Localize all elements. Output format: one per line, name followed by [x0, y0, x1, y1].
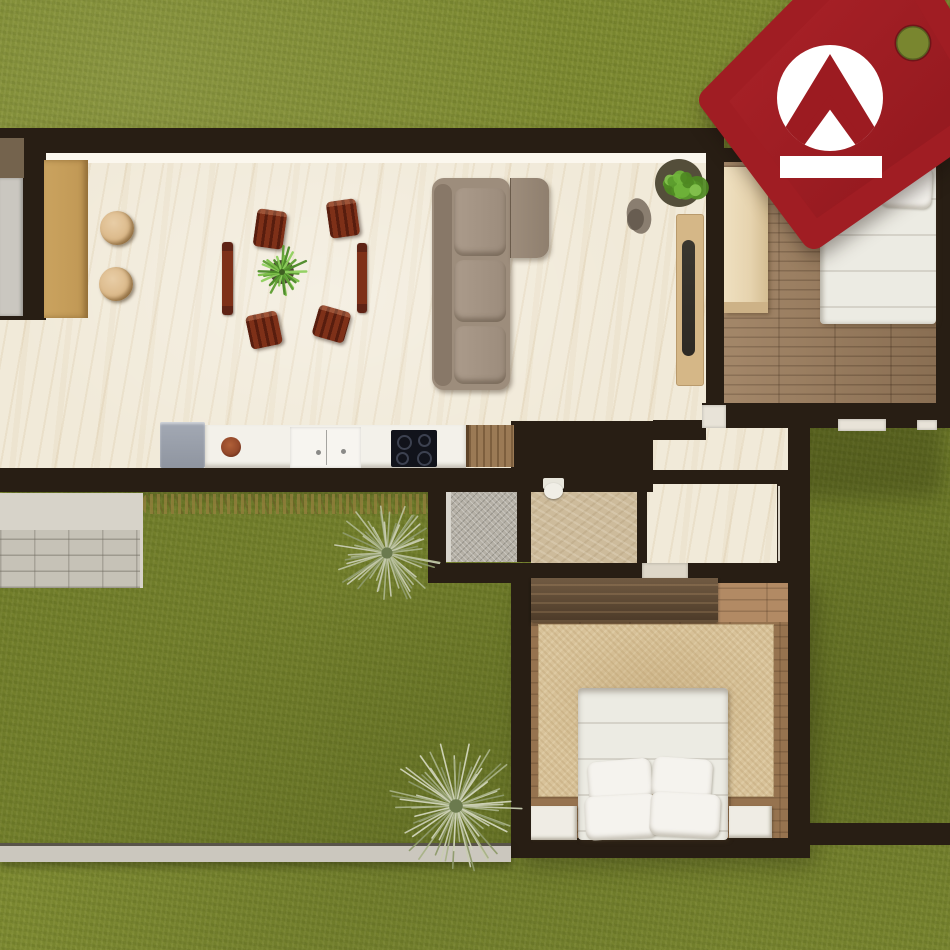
cabinet-knob	[341, 449, 346, 454]
sofa-cushion	[454, 188, 506, 256]
kitchen-door	[466, 425, 514, 467]
sink-cabinet	[290, 427, 361, 468]
paver-area	[0, 530, 140, 588]
sofa-chaise	[510, 178, 549, 258]
porch-slab	[0, 178, 23, 316]
wall-hallway-west	[637, 478, 647, 563]
toilet	[544, 483, 563, 499]
nightstand	[729, 806, 772, 838]
bar-stool	[100, 211, 134, 245]
sill-bedroom-top-2	[917, 420, 937, 430]
garden-low-wall	[0, 843, 511, 862]
sofa-backrest	[434, 184, 452, 386]
wall-utility-block	[511, 421, 653, 492]
wall-bedroom-bottom-east	[788, 563, 810, 858]
hallway-door	[777, 484, 790, 563]
courtyard-right-grass	[808, 428, 950, 823]
pillow	[649, 791, 721, 839]
dining-bench	[222, 242, 233, 315]
wall-courtyard-right-south	[798, 823, 950, 845]
wall-hallway-east	[788, 421, 810, 583]
wall-bedroom-top-east	[936, 148, 950, 428]
wall-north	[0, 128, 716, 153]
burner	[417, 451, 432, 466]
refrigerator	[160, 422, 205, 468]
threshold-living-corridor	[702, 405, 726, 428]
dining-chair	[326, 198, 361, 239]
pillow	[584, 793, 658, 841]
sofa-cushion	[454, 260, 506, 322]
tv	[682, 240, 695, 356]
bar-counter	[44, 160, 88, 318]
wardrobe	[724, 167, 768, 313]
dining-chair	[253, 208, 288, 250]
sill-bedroom-top-1	[838, 419, 886, 431]
bar-stool	[99, 267, 133, 301]
nightstand	[531, 806, 577, 840]
wardrobe-edge	[724, 302, 768, 313]
porch-bench	[0, 138, 24, 178]
floorplan-render	[0, 0, 950, 950]
wall-shower-west	[428, 478, 446, 570]
burner	[396, 452, 409, 465]
dresser	[531, 578, 718, 622]
cabinet-divider	[326, 430, 328, 465]
sofa-cushion	[454, 326, 506, 384]
burner	[418, 434, 431, 447]
shower-floor	[446, 490, 522, 562]
cabinet-knob	[316, 450, 321, 455]
dining-chair	[245, 310, 283, 350]
pillow	[879, 165, 933, 210]
wall-bedroom-top-south	[702, 403, 950, 428]
cooktop	[391, 430, 437, 467]
dining-bench	[357, 243, 367, 313]
wall-corridor-thin	[653, 470, 790, 484]
wall-bedroom-top-north	[716, 148, 950, 162]
wall-bedroom-bottom-south	[511, 838, 810, 858]
serving-bowl	[221, 437, 241, 457]
wall-corridor-stub	[653, 420, 706, 440]
wall-shower-divider	[517, 482, 531, 562]
hallway-floor	[645, 484, 777, 563]
burner	[397, 435, 412, 450]
wall-bedroom-bottom-west	[511, 573, 531, 845]
pillow	[823, 166, 878, 210]
door-leaf	[778, 486, 780, 561]
wall-living-bedroom	[706, 128, 724, 405]
